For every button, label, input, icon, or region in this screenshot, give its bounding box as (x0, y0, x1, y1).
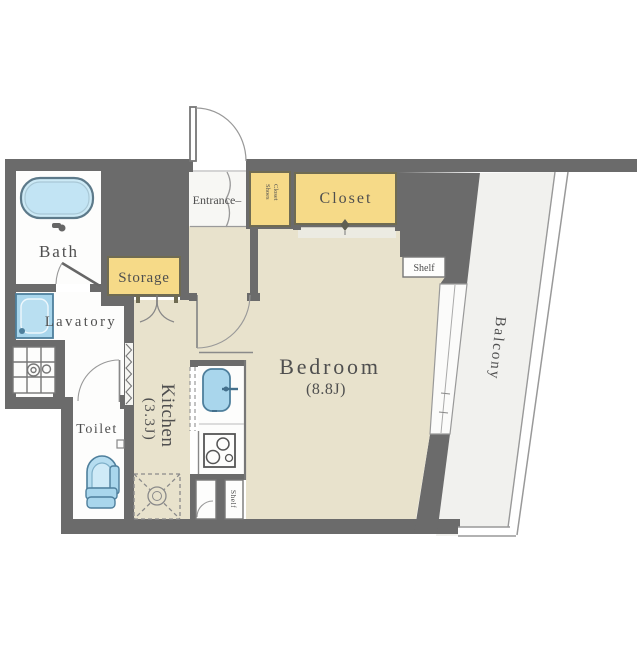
svg-text:Toilet: Toilet (76, 422, 117, 437)
svg-text:Bath: Bath (39, 242, 79, 261)
svg-text:Shoes: Shoes (264, 184, 271, 200)
svg-text:Kitchen: Kitchen (157, 384, 178, 448)
svg-text:Closet: Closet (272, 184, 279, 201)
svg-text:Shelf: Shelf (413, 263, 435, 274)
svg-text:Shelf: Shelf (229, 490, 238, 508)
svg-text:Closet: Closet (320, 190, 373, 207)
svg-text:Entrance–: Entrance– (193, 193, 243, 207)
svg-text:Storage: Storage (118, 270, 169, 286)
svg-text:Bedroom: Bedroom (279, 354, 380, 379)
svg-text:(8.8J): (8.8J) (306, 381, 346, 398)
svg-text:Lavatory: Lavatory (45, 314, 117, 330)
svg-text:(3.3J): (3.3J) (141, 398, 157, 442)
